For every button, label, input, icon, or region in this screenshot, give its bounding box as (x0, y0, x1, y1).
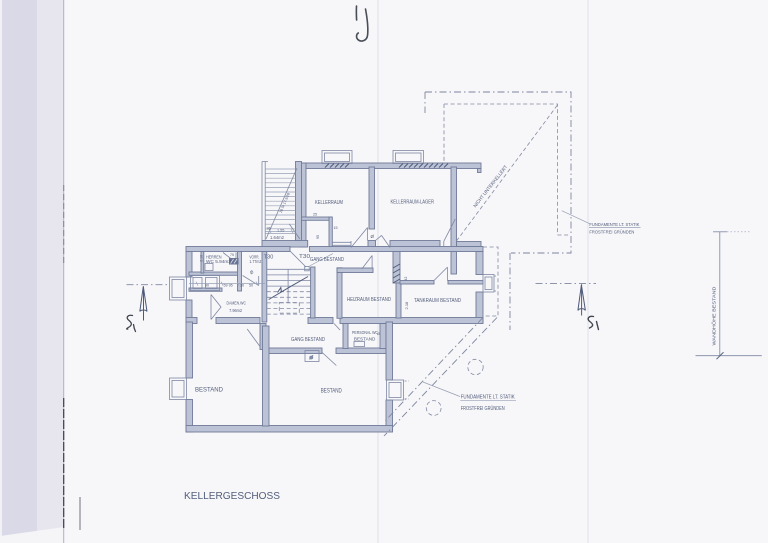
svg-text:GANG BESTAND: GANG BESTAND (310, 257, 344, 263)
svg-text:FUNDAMENTE LT. STATIK: FUNDAMENTE LT. STATIK (461, 395, 516, 401)
svg-text:KELLERRAUM: KELLERRAUM (315, 200, 343, 206)
svg-text:DAMEN.WC: DAMEN.WC (227, 301, 247, 306)
svg-text:FUNDAMENTE LT. STATIK: FUNDAMENTE LT. STATIK (589, 222, 640, 227)
svg-text:BESTAND: BESTAND (321, 388, 342, 394)
svg-text:25: 25 (313, 213, 317, 217)
svg-text:30: 30 (240, 284, 244, 288)
svg-text:GANG BESTAND: GANG BESTAND (291, 337, 325, 343)
svg-text:WC 5.94m3: WC 5.94m3 (206, 259, 232, 264)
svg-text:T30: T30 (299, 254, 310, 260)
svg-text:50: 50 (249, 284, 253, 288)
svg-text:WANDHÖHE BESTAND: WANDHÖHE BESTAND (711, 286, 717, 346)
svg-text:2.18: 2.18 (404, 301, 409, 310)
svg-text:15: 15 (334, 226, 338, 230)
svg-text:Ø: Ø (371, 234, 375, 239)
svg-text:FROSTFREI GRÜNDEN: FROSTFREI GRÜNDEN (461, 405, 505, 412)
svg-text:7.96m2: 7.96m2 (229, 308, 242, 313)
svg-text:1.64m2: 1.64m2 (270, 235, 285, 240)
svg-text:PERSONAL WC: PERSONAL WC (352, 330, 378, 335)
svg-text:2.10: 2.10 (199, 255, 203, 262)
svg-text:Ø: Ø (310, 355, 314, 360)
svg-text:KELLERRAUM-LAGER: KELLERRAUM-LAGER (391, 200, 435, 206)
svg-text:TANKRAUM BESTAND: TANKRAUM BESTAND (414, 298, 461, 304)
svg-text:BESTAND: BESTAND (354, 337, 376, 342)
svg-text:1.55: 1.55 (277, 229, 284, 233)
svg-text:BESTAND: BESTAND (195, 387, 224, 394)
svg-text:36: 36 (267, 227, 271, 231)
svg-text:1.77m2: 1.77m2 (249, 259, 261, 264)
svg-text:75: 75 (230, 253, 234, 257)
svg-text:59 95: 59 95 (224, 284, 233, 288)
svg-text:Ø: Ø (249, 269, 255, 275)
svg-text:90: 90 (205, 284, 209, 288)
svg-text:42: 42 (404, 277, 408, 281)
svg-text:95: 95 (316, 235, 320, 239)
svg-text:KELLERGESCHOSS: KELLERGESCHOSS (184, 491, 280, 502)
svg-text:HEIZRAUM BESTAND: HEIZRAUM BESTAND (347, 297, 391, 303)
svg-text:FROSTFREI GRÜNDEN: FROSTFREI GRÜNDEN (589, 229, 634, 235)
svg-text:T30: T30 (264, 255, 274, 261)
